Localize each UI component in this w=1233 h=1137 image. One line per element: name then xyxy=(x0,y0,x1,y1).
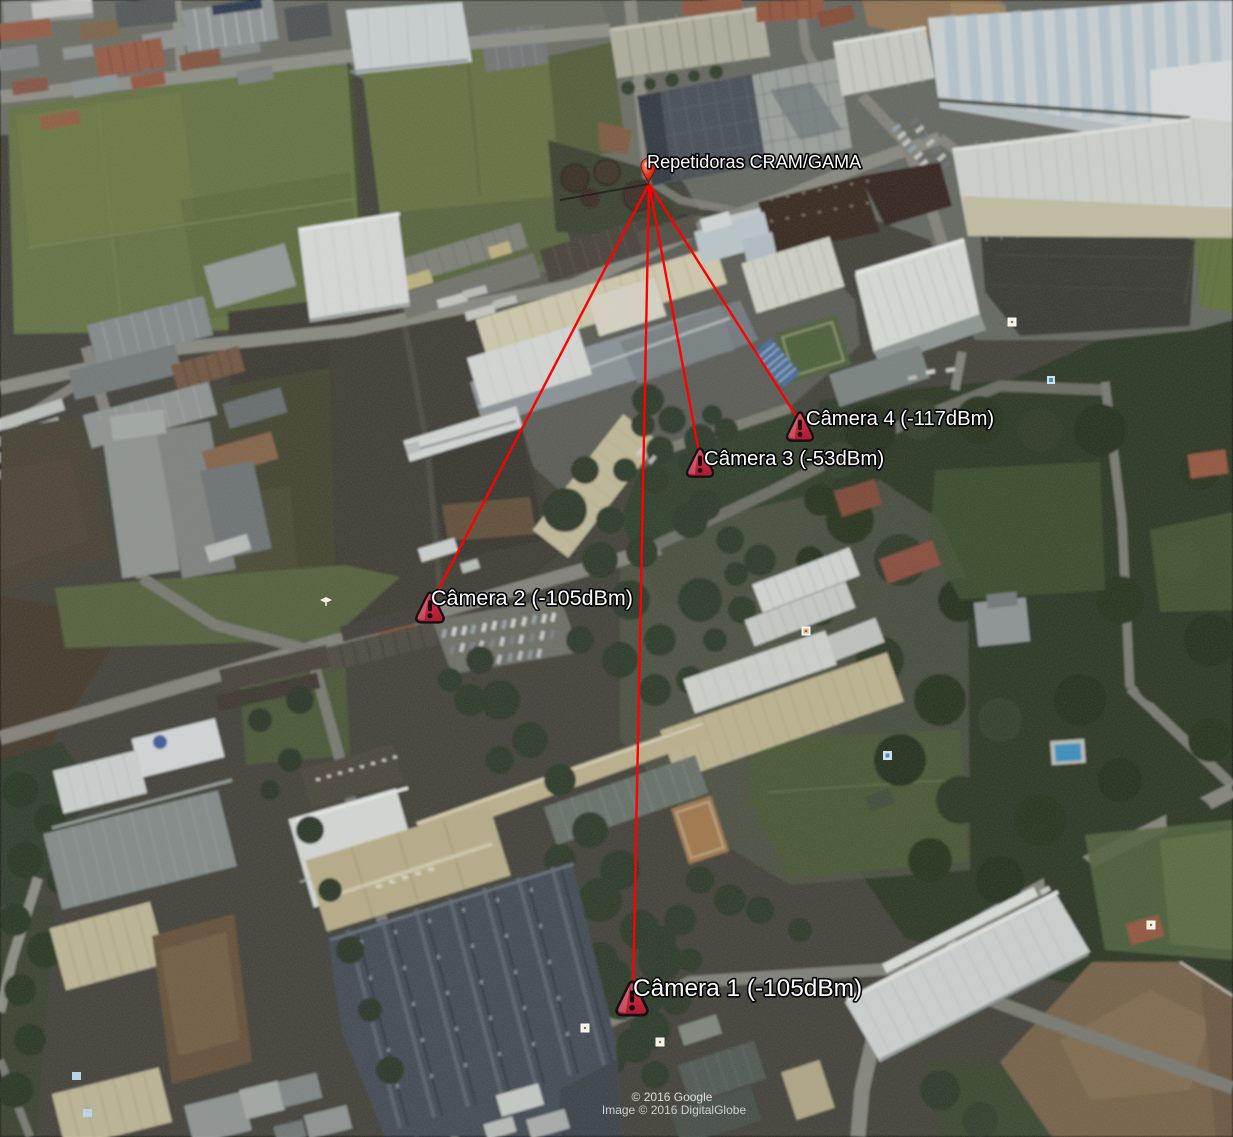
svg-text:Image © 2016 DigitalGlobe: Image © 2016 DigitalGlobe xyxy=(602,1103,747,1117)
svg-text:Câmera 1 (-105dBm): Câmera 1 (-105dBm) xyxy=(633,975,862,1002)
svg-text:Câmera 3 (-53dBm): Câmera 3 (-53dBm) xyxy=(704,448,884,470)
svg-text:Câmera 4 (-117dBm): Câmera 4 (-117dBm) xyxy=(806,408,994,430)
svg-text:Câmera 2 (-105dBm): Câmera 2 (-105dBm) xyxy=(431,586,633,610)
svg-text:© 2016 Google: © 2016 Google xyxy=(632,1090,713,1104)
svg-text:Repetidoras CRAM/GAMA: Repetidoras CRAM/GAMA xyxy=(647,152,862,172)
